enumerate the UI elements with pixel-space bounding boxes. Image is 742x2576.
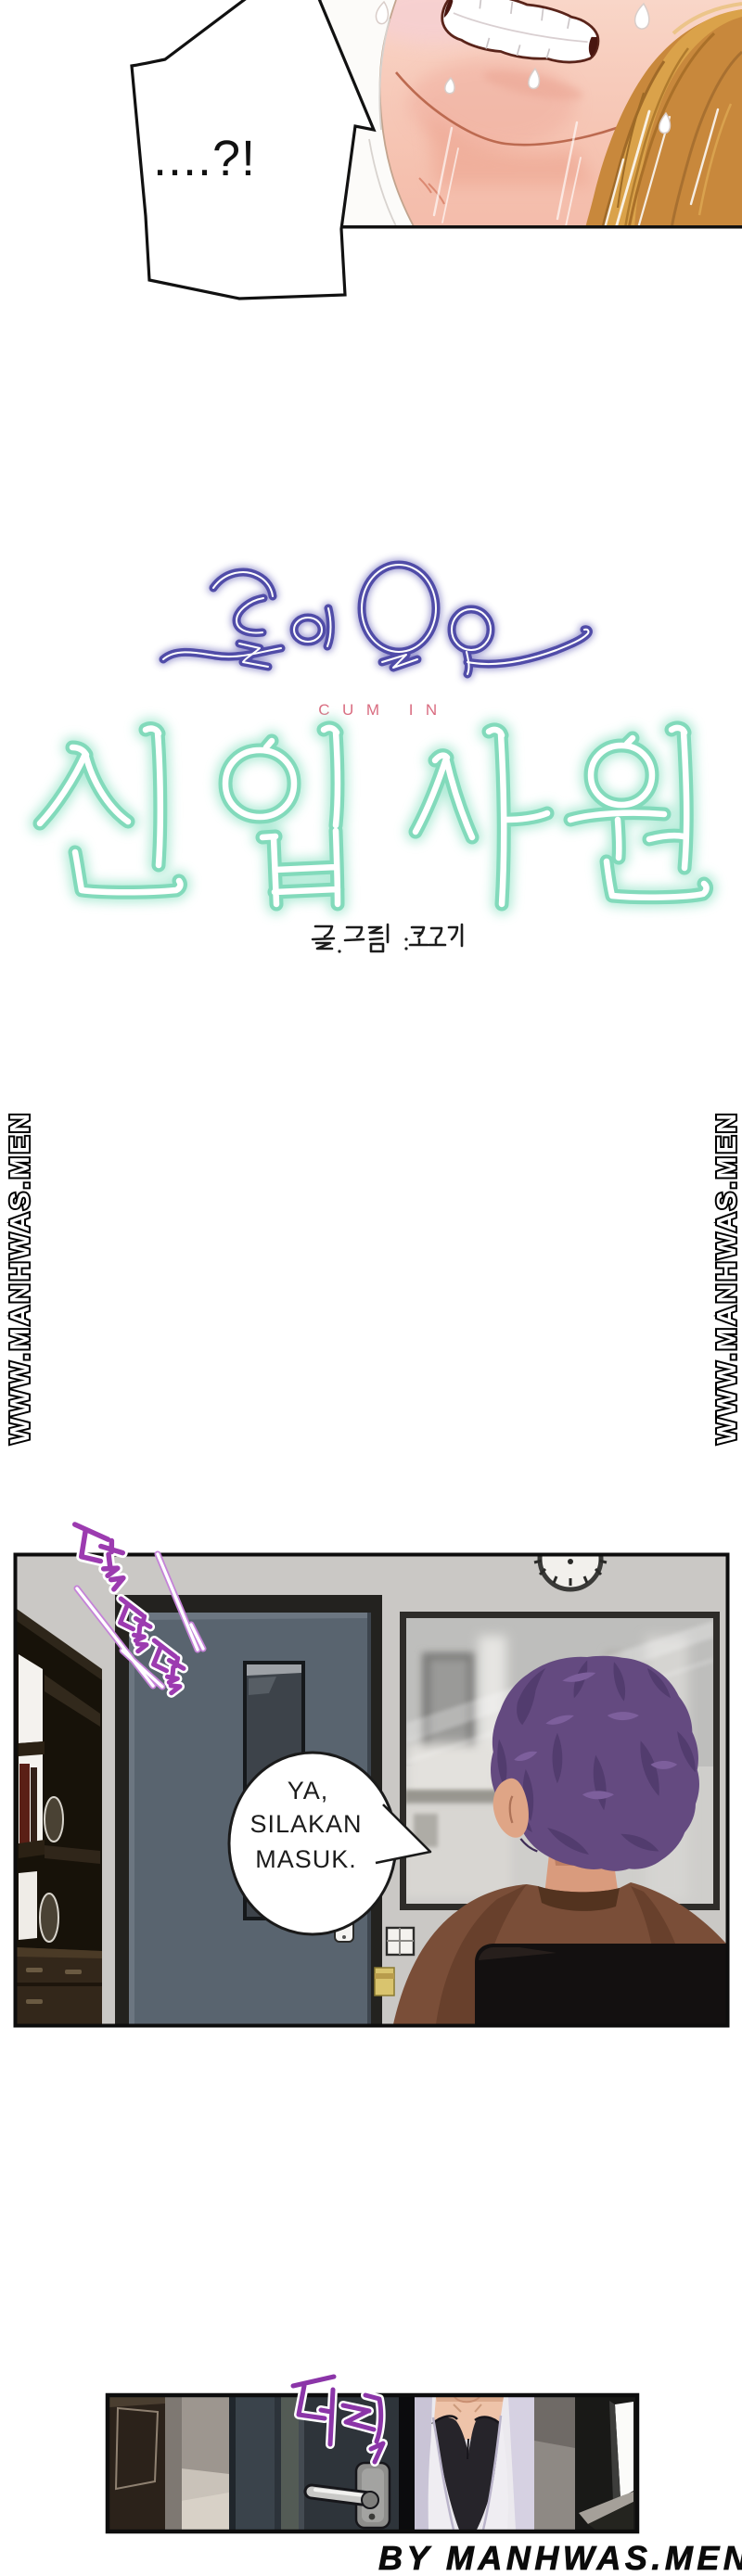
svg-text:MASUK.: MASUK. xyxy=(255,1845,357,1873)
svg-text:YA,: YA, xyxy=(288,1777,329,1804)
svg-text:CUM IN: CUM IN xyxy=(318,701,449,719)
svg-text:BY MANHWAS.MEN: BY MANHWAS.MEN xyxy=(378,2539,742,2576)
svg-text:....?!: ....?! xyxy=(153,131,256,186)
svg-text:WWW.MANHWAS.MEN: WWW.MANHWAS.MEN xyxy=(6,1111,35,1444)
svg-text:SILAKAN: SILAKAN xyxy=(249,1810,362,1838)
svg-text:WWW.MANHWAS.MEN: WWW.MANHWAS.MEN xyxy=(712,1111,742,1444)
